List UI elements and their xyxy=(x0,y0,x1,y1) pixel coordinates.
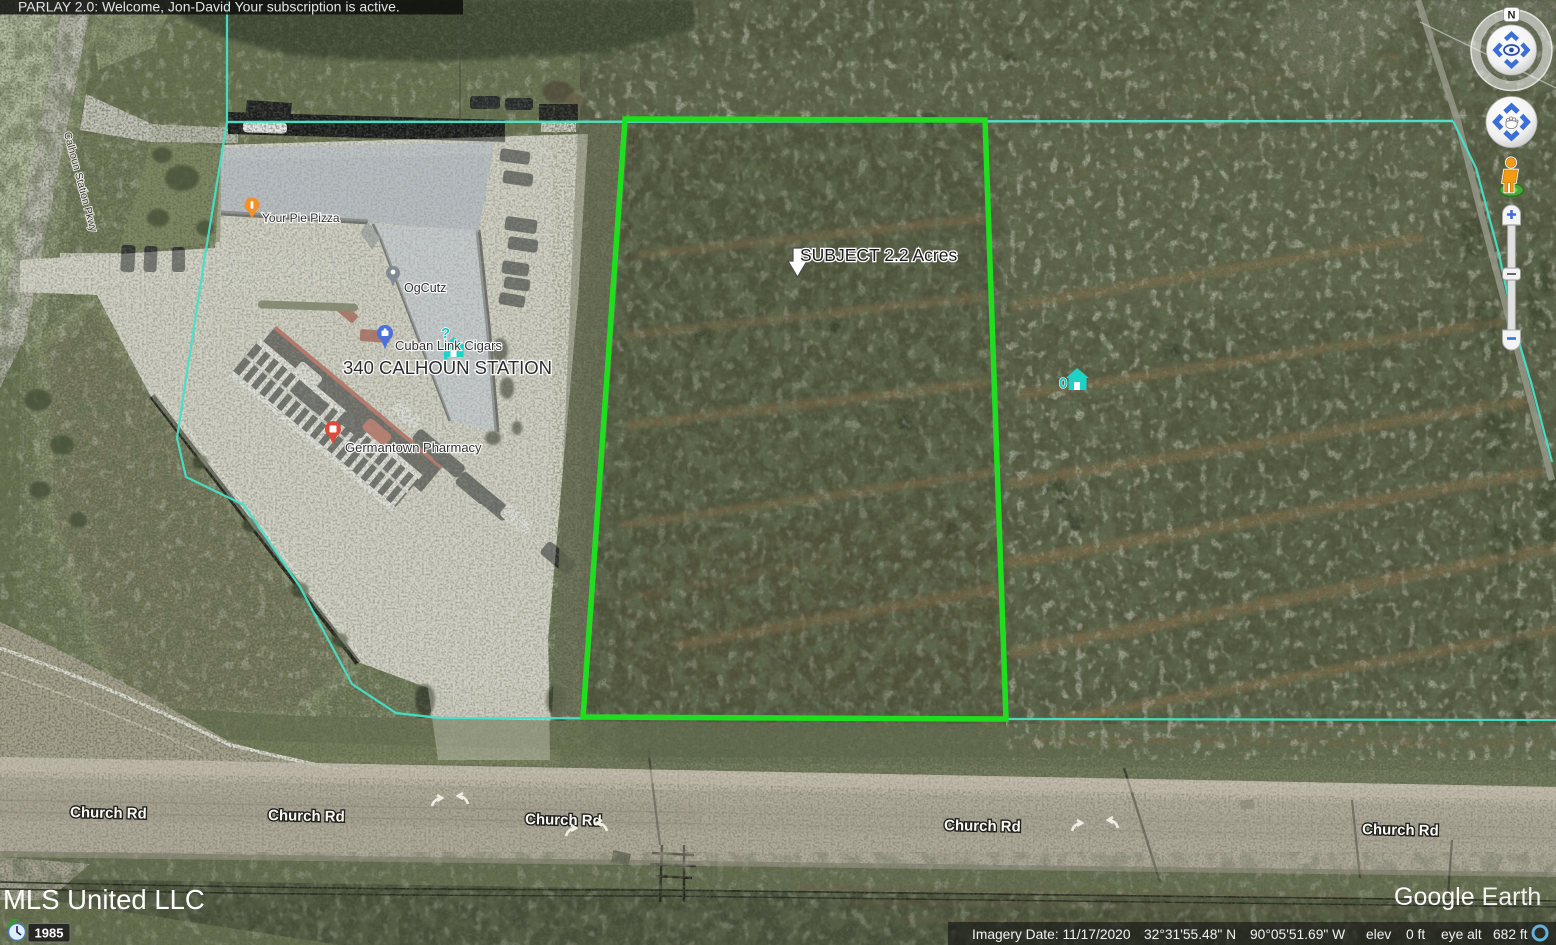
svg-text:Cuban Link Cigars: Cuban Link Cigars xyxy=(395,338,502,353)
svg-text:Germantown Pharmacy: Germantown Pharmacy xyxy=(345,440,482,455)
svg-text:1985: 1985 xyxy=(35,926,64,941)
svg-text:Church Rd: Church Rd xyxy=(70,804,147,823)
svg-text:32°31'55.48" N: 32°31'55.48" N xyxy=(1144,927,1236,942)
svg-text:Your Pie Pizza: Your Pie Pizza xyxy=(262,211,340,225)
svg-text:MLS United LLC: MLS United LLC xyxy=(3,884,205,915)
svg-text:N: N xyxy=(1508,10,1516,22)
svg-text:Google Earth: Google Earth xyxy=(1394,883,1541,911)
svg-text:Church Rd: Church Rd xyxy=(1362,821,1439,840)
svg-text:0: 0 xyxy=(1059,375,1067,392)
svg-text:Church Rd: Church Rd xyxy=(268,807,345,826)
svg-text:682 ft: 682 ft xyxy=(1493,927,1528,942)
svg-text:0 ft: 0 ft xyxy=(1406,927,1425,942)
svg-text:Church Rd: Church Rd xyxy=(944,817,1021,836)
svg-text:PARLAY 2.0: Welcome, Jon-David: PARLAY 2.0: Welcome, Jon-David Your subs… xyxy=(18,0,400,15)
svg-text:eye alt: eye alt xyxy=(1441,927,1482,942)
svg-text:elev: elev xyxy=(1366,927,1391,942)
svg-text:Church Rd: Church Rd xyxy=(525,811,602,830)
svg-text:SUBJECT 2.2 Acres: SUBJECT 2.2 Acres xyxy=(800,245,957,265)
svg-text:90°05'51.69" W: 90°05'51.69" W xyxy=(1250,927,1345,942)
svg-text:Imagery Date: 11/17/2020: Imagery Date: 11/17/2020 xyxy=(972,927,1131,942)
svg-text:340 CALHOUN STATION: 340 CALHOUN STATION xyxy=(343,357,552,378)
svg-text:OgCutz: OgCutz xyxy=(404,281,446,295)
